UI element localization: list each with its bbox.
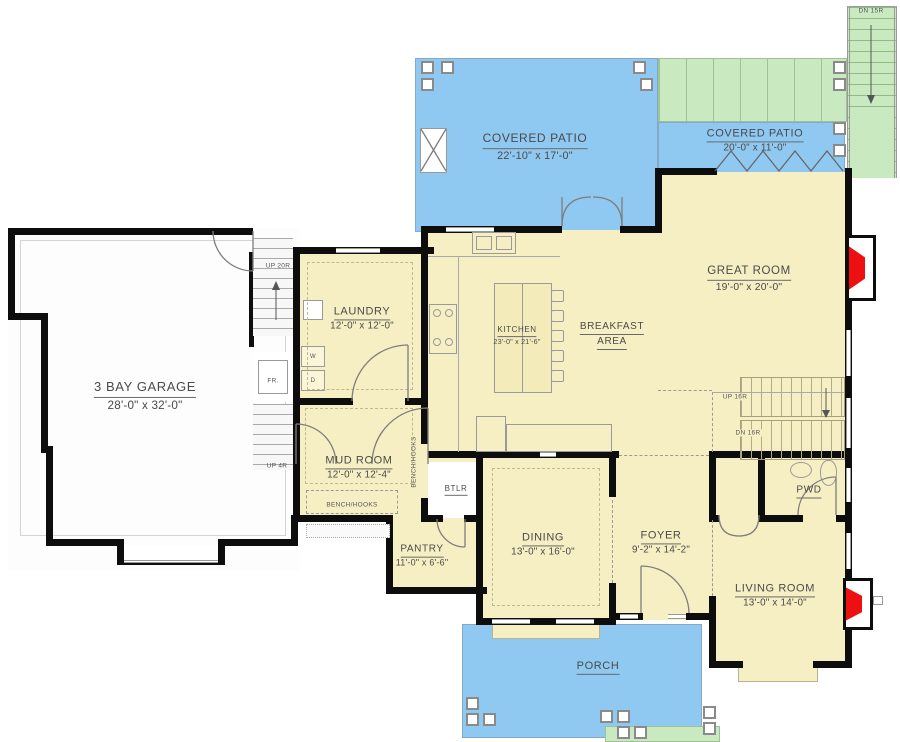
breakfast-label: BREAKFAST AREA <box>580 320 644 350</box>
powder-label: PWD <box>796 484 821 499</box>
garage-name: 3 BAY GARAGE <box>94 379 196 398</box>
covered-patio-side-name: COVERED PATIO <box>707 126 804 142</box>
living-room-label: LIVING ROOM 13'-0" x 14'-0" <box>735 581 815 610</box>
butler-label: BTLR <box>445 484 468 496</box>
kitchen-label: KITCHEN 23'-0" x 21'-6" <box>493 325 540 347</box>
covered-patio-main-dims: 22'-10" x 17'-0" <box>483 149 588 163</box>
laundry-dims: 12'-0" x 12'-0" <box>330 321 394 334</box>
pantry-dims: 11'-0" x 6'-6" <box>396 558 448 570</box>
porch-label: PORCH <box>577 659 620 675</box>
laundry-name: LAUNDRY <box>334 304 391 320</box>
floor-plan: DN 15R <box>0 0 900 742</box>
kitchen-dims: 23'-0" x 21'-6" <box>493 338 540 347</box>
foyer-label: FOYER 9'-2" x 14'-2" <box>632 528 690 557</box>
plan-linework <box>0 0 900 742</box>
living-room-dims: 13'-0" x 14'-0" <box>735 598 815 611</box>
butler-name: BTLR <box>445 484 468 496</box>
covered-patio-side-label: COVERED PATIO 20'-0" x 11'-0" <box>707 126 804 155</box>
powder-name: PWD <box>796 484 821 499</box>
dining-name: DINING <box>522 530 564 546</box>
foyer-name: FOYER <box>641 528 682 544</box>
covered-patio-main-label: COVERED PATIO 22'-10" x 17'-0" <box>483 131 588 163</box>
covered-patio-main-name: COVERED PATIO <box>483 131 588 149</box>
kitchen-name: KITCHEN <box>497 325 536 337</box>
pantry-label: PANTRY 11'-0" x 6'-6" <box>396 543 448 570</box>
great-room-name: GREAT ROOM <box>707 264 791 281</box>
garage-dims: 28'-0" x 32'-0" <box>94 398 196 413</box>
mud-room-dims: 12'-0" x 12'-4" <box>325 470 392 483</box>
breakfast-name-1: BREAKFAST <box>580 320 644 335</box>
great-room-label: GREAT ROOM 19'-0" x 20'-0" <box>707 264 791 294</box>
garage-label: 3 BAY GARAGE 28'-0" x 32'-0" <box>94 379 196 413</box>
pantry-name: PANTRY <box>400 543 443 558</box>
breakfast-name-2: AREA <box>597 335 627 350</box>
laundry-label: LAUNDRY 12'-0" x 12'-0" <box>330 304 394 333</box>
foyer-dims: 9'-2" x 14'-2" <box>632 545 690 558</box>
dining-label: DINING 13'-0" x 16'-0" <box>511 530 575 559</box>
covered-patio-side-dims: 20'-0" x 11'-0" <box>707 143 804 156</box>
mud-room-name: MUD ROOM <box>325 453 392 469</box>
mud-room-label: MUD ROOM 12'-0" x 12'-4" <box>325 453 392 482</box>
living-room-name: LIVING ROOM <box>735 581 815 597</box>
dining-dims: 13'-0" x 16'-0" <box>511 547 575 560</box>
porch-name: PORCH <box>577 659 620 675</box>
great-room-dims: 19'-0" x 20'-0" <box>707 281 791 294</box>
